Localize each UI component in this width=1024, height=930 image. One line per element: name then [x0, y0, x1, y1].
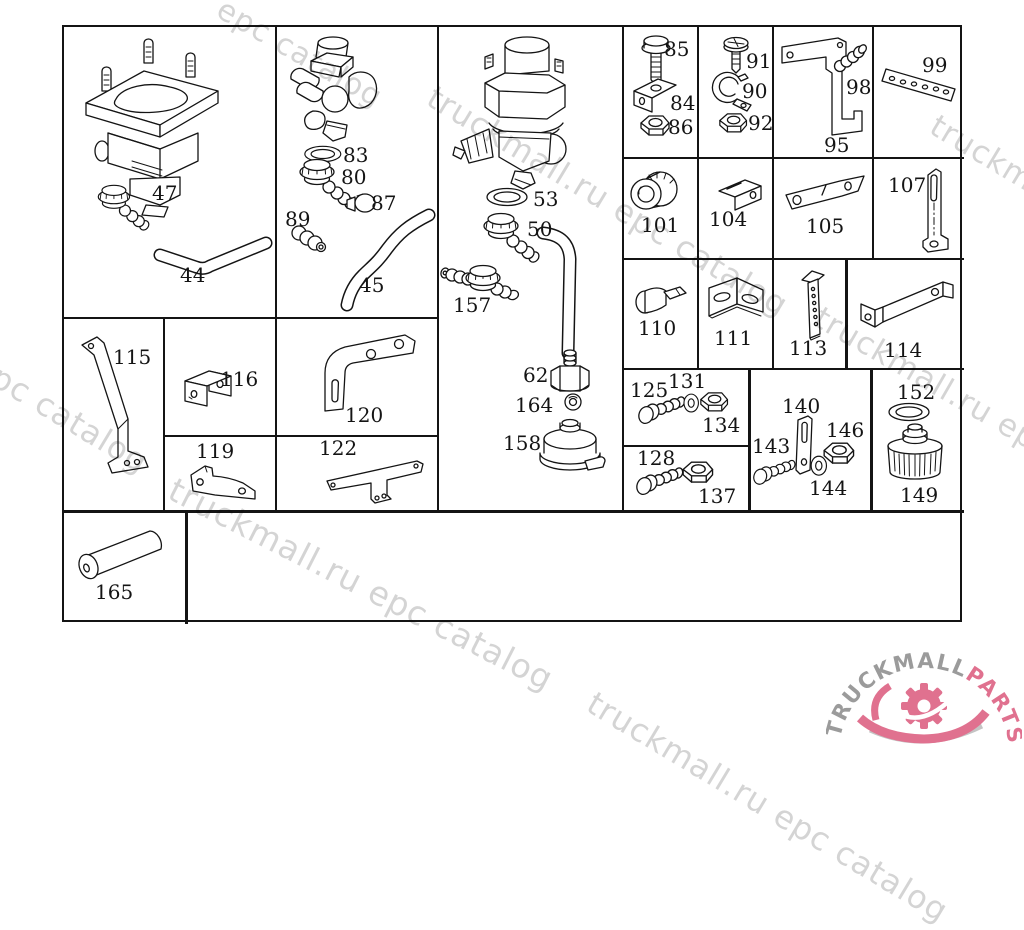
part-label-113: 113: [789, 338, 827, 358]
part-label-90: 90: [742, 81, 767, 101]
part-label-128: 128: [637, 448, 675, 468]
swoosh-icon: [875, 686, 890, 720]
grid-line: [64, 510, 964, 513]
part-label-95: 95: [824, 135, 849, 155]
part-label-134: 134: [702, 415, 740, 435]
part-label-107: 107: [888, 175, 926, 195]
part-label-152: 152: [897, 382, 935, 402]
part-label-164: 164: [515, 395, 553, 415]
cell-104: 104: [699, 159, 772, 258]
part-152-drawing: [887, 402, 931, 422]
cell-152: 152 149: [873, 370, 964, 510]
cell-116: 116: [165, 319, 275, 435]
part-137-drawing: [680, 459, 716, 487]
logo-text-truckmall: TRUCKMALL: [826, 649, 972, 740]
part-label-53: 53: [533, 189, 558, 209]
cell-122: 122: [277, 437, 437, 510]
part-101-drawing: [629, 167, 683, 217]
part-label-92: 92: [748, 113, 773, 133]
parts-diagram: 47 44: [62, 25, 962, 622]
part-label-44: 44: [180, 265, 205, 285]
part-label-62: 62: [523, 365, 548, 385]
cell-120: 120: [277, 319, 437, 435]
part-110-drawing: [632, 280, 688, 320]
part-label-165: 165: [95, 582, 133, 602]
part-53-drawing: [485, 187, 529, 207]
cell-128: 128 137: [624, 447, 748, 510]
part-label-83: 83: [343, 145, 368, 165]
cell-105: 105: [774, 159, 872, 258]
cell-140: 140 143 144 146: [751, 370, 870, 510]
part-158-drawing: [533, 415, 607, 477]
valve-assembly-drawing: [451, 31, 581, 201]
cell-95: 98 95: [774, 27, 872, 157]
part-47-drawing: [90, 183, 160, 241]
cell-50: 53 50 157 62 164 158: [439, 27, 622, 510]
part-label-87: 87: [371, 193, 396, 213]
part-label-101: 101: [641, 215, 679, 235]
part-label-80: 80: [341, 167, 366, 187]
part-label-86: 86: [668, 117, 693, 137]
part-label-131: 131: [668, 371, 706, 391]
cell-44: 47 44: [64, 27, 275, 317]
part-label-144: 144: [809, 478, 847, 498]
part-label-120: 120: [345, 405, 383, 425]
cell-85: 85 84 86: [624, 27, 697, 157]
cell-107: 107: [874, 159, 964, 258]
part-label-140: 140: [782, 396, 820, 416]
part-label-104: 104: [709, 209, 747, 229]
part-label-91: 91: [746, 51, 771, 71]
part-label-157: 157: [453, 295, 491, 315]
part-119-drawing: [185, 461, 263, 507]
part-label-111: 111: [714, 328, 752, 348]
part-label-137: 137: [698, 486, 736, 506]
part-86-drawing: [638, 113, 672, 139]
part-label-105: 105: [806, 216, 844, 236]
part-label-158: 158: [503, 433, 541, 453]
part-label-149: 149: [900, 485, 938, 505]
hose-drawing: [533, 221, 585, 363]
part-label-50: 50: [527, 219, 552, 239]
part-62-drawing: [543, 347, 599, 399]
part-label-146: 146: [826, 420, 864, 440]
part-label-110: 110: [638, 318, 676, 338]
part-label-99: 99: [922, 55, 947, 75]
part-label-119: 119: [196, 441, 234, 461]
part-label-115: 115: [113, 347, 151, 367]
part-label-98: 98: [846, 77, 871, 97]
part-label-116: 116: [220, 369, 258, 389]
cell-45: 83 80 87 89 45: [277, 27, 437, 317]
cell-101: 101: [624, 159, 697, 258]
part-98-drawing: [832, 43, 866, 75]
cell-115: 115: [64, 319, 163, 510]
cell-119: 119: [165, 437, 275, 510]
cell-99: 99: [874, 27, 964, 157]
part-111-drawing: [705, 274, 767, 326]
part-92-drawing: [717, 111, 751, 137]
part-label-45: 45: [359, 275, 384, 295]
part-143-drawing: [753, 456, 803, 488]
part-149-drawing: [886, 422, 944, 484]
part-146-drawing: [821, 440, 857, 468]
grid-line: [185, 510, 188, 624]
part-label-125: 125: [630, 380, 668, 400]
cell-110: 110: [624, 260, 697, 368]
part-114-drawing: [855, 272, 955, 338]
truckmall-logo: TRUCKMALLPARTS: [826, 642, 1022, 748]
cell-91: 91 90 92: [699, 27, 772, 157]
cell-114: 114: [847, 260, 964, 368]
part-44-drawing: [152, 229, 274, 277]
part-label-85: 85: [664, 39, 689, 59]
cell-111: 111: [699, 260, 772, 368]
part-label-89: 89: [285, 209, 310, 229]
part-label-143: 143: [752, 436, 790, 456]
part-label-122: 122: [319, 438, 357, 458]
cell-165: 165: [64, 512, 185, 624]
valve-assembly-drawing: [283, 33, 388, 153]
cell-113: 113: [774, 260, 845, 368]
part-164-drawing: [563, 393, 585, 413]
part-label-84: 84: [670, 93, 695, 113]
part-122-drawing: [323, 453, 435, 511]
part-label-114: 114: [884, 340, 922, 360]
part-105-drawing: [782, 173, 870, 219]
cell-125: 125 131 134: [624, 370, 748, 445]
part-label-47: 47: [152, 183, 177, 203]
